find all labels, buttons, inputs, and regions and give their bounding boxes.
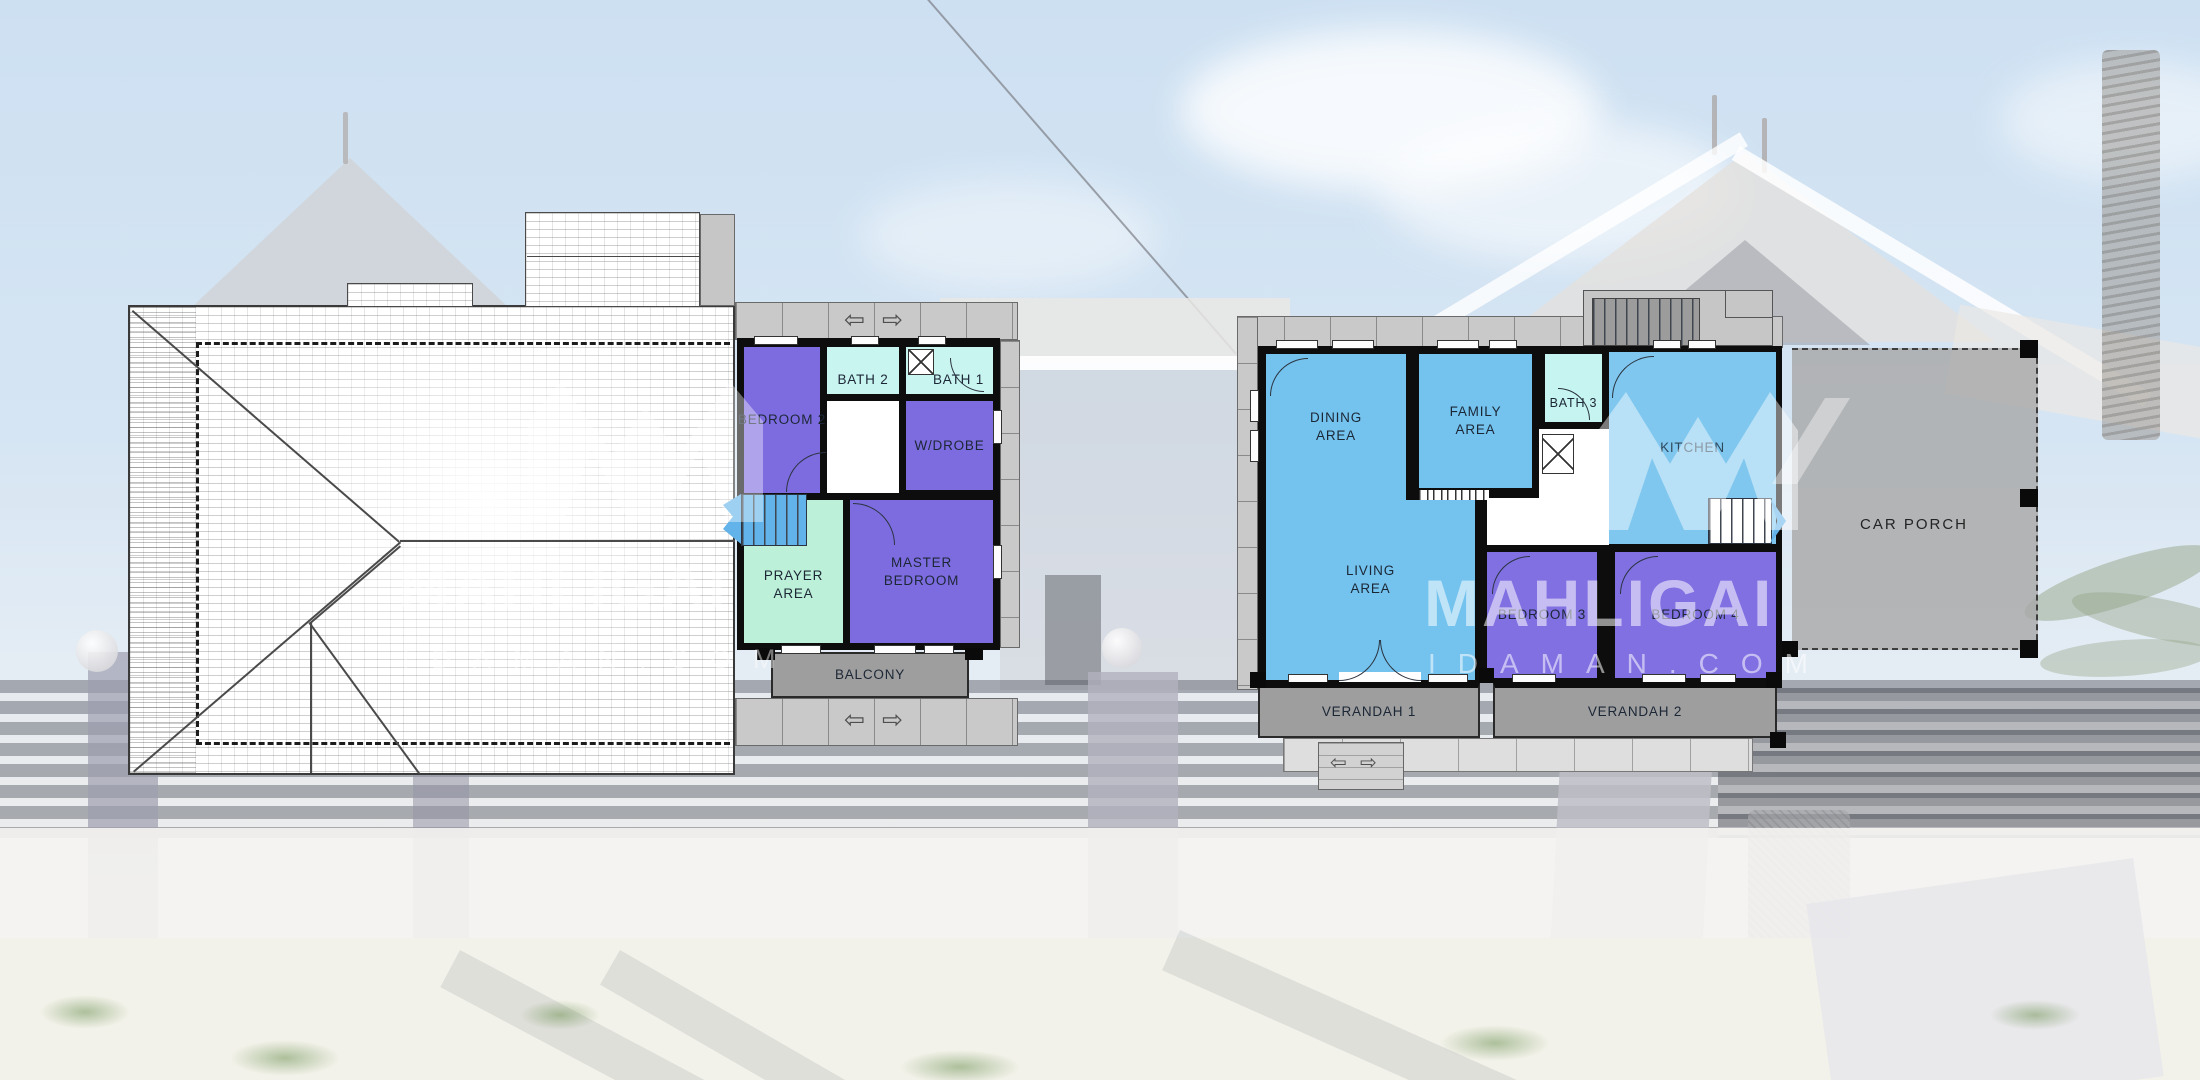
balcony: BALCONY [771, 652, 969, 698]
lamp-globe [1102, 628, 1142, 668]
room-label: BATH 2 [837, 371, 888, 389]
cabinet-strip [1419, 490, 1489, 500]
roof-valley-line [310, 622, 312, 773]
room-label: BALCONY [835, 666, 905, 684]
upper-walkway-bottom [735, 698, 1018, 746]
room-label: MASTER BEDROOM [874, 554, 969, 589]
window-marker [1688, 340, 1716, 349]
room-label: CAR PORCH [1792, 516, 2036, 533]
window-marker [1437, 340, 1479, 349]
window-marker [1250, 430, 1259, 462]
column [2020, 340, 2038, 358]
back-steps [1592, 298, 1700, 346]
grass-tuft [1440, 1025, 1550, 1061]
back-step-side [1725, 290, 1773, 318]
ground-walkway-left [1237, 316, 1258, 690]
room-label: VERANDAH 2 [1588, 703, 1682, 721]
window-marker [1653, 340, 1681, 349]
grass-tuft [900, 1050, 1020, 1080]
window-marker [754, 336, 798, 345]
arrow-right-icon: ⇨ [882, 308, 903, 333]
room-bath-2: BATH 2 [827, 347, 899, 394]
window-marker [1332, 340, 1374, 349]
grass-tuft [40, 995, 130, 1029]
watermark-brand: MAHLIGAI [1424, 570, 1774, 636]
arrow-right-icon: ⇨ [1360, 753, 1377, 773]
store-marker [1542, 434, 1574, 474]
arrow-left-icon: ⇦ [1330, 753, 1347, 773]
window-marker [1250, 390, 1259, 422]
verandah-1: VERANDAH 1 [1258, 682, 1480, 738]
window-marker [924, 645, 954, 654]
grass-tuft [520, 1000, 600, 1030]
column [2020, 489, 2038, 507]
room-label: DINING AREA [1305, 409, 1367, 444]
roof-ridge-line [400, 540, 735, 542]
column [1250, 672, 1266, 688]
tree-trunk [2102, 50, 2160, 440]
arrow-left-icon: ⇦ [844, 308, 865, 333]
floor-plan-overlay-graphic: ⇦ ⇨ ⇦ ⇨ BEDROOM 2 BATH 2 BATH 1 W/DROBE … [0, 0, 2200, 1080]
grass-tuft [230, 1040, 340, 1076]
window-marker [918, 336, 946, 345]
roof-ridge-cap [130, 307, 196, 773]
upper-walkway-right [1000, 340, 1020, 648]
cloud [860, 180, 1160, 290]
window-marker [1489, 340, 1517, 349]
grass-tuft [1990, 1000, 2080, 1030]
room-label: VERANDAH 1 [1322, 703, 1416, 721]
verandah-2: VERANDAH 2 [1493, 682, 1777, 738]
window-marker [993, 545, 1002, 579]
roof-upper-ridge [527, 256, 699, 257]
shower-marker [908, 349, 934, 375]
window-marker [1276, 340, 1318, 349]
column [1770, 732, 1786, 748]
arrow-right-icon: ⇨ [882, 708, 903, 733]
roof-upper-section [525, 212, 700, 307]
watermark-brand: MAHLIGAI [398, 556, 729, 618]
upper-walkway-top [735, 302, 1018, 340]
hallway [1487, 498, 1609, 545]
room-label: PRAYER AREA [763, 567, 825, 602]
gable-finial [343, 112, 348, 164]
column [2020, 640, 2038, 658]
room-family-area: FAMILY AREA [1419, 354, 1532, 488]
house-door-dark [1045, 575, 1101, 685]
room-label: W/DROBE [914, 437, 984, 455]
lamp-globe [76, 630, 118, 672]
room-label: LIVING AREA [1340, 562, 1402, 597]
watermark-site: IDAMAN.COM [1428, 650, 1830, 678]
arrow-left-icon: ⇦ [844, 708, 865, 733]
roof-side-band [700, 214, 735, 306]
roof-setback-dashed [196, 342, 730, 745]
room-wardrobe: W/DROBE [906, 401, 993, 490]
window-marker [993, 410, 1002, 444]
room-label: FAMILY AREA [1445, 403, 1507, 438]
hallway [827, 401, 899, 493]
wall-stub [965, 648, 983, 660]
window-marker [874, 645, 916, 654]
window-marker [851, 336, 879, 345]
watermark-site: IDAMAN.COM [402, 646, 798, 673]
roof-bump [347, 283, 473, 307]
car-porch: CAR PORCH [1792, 348, 2038, 650]
